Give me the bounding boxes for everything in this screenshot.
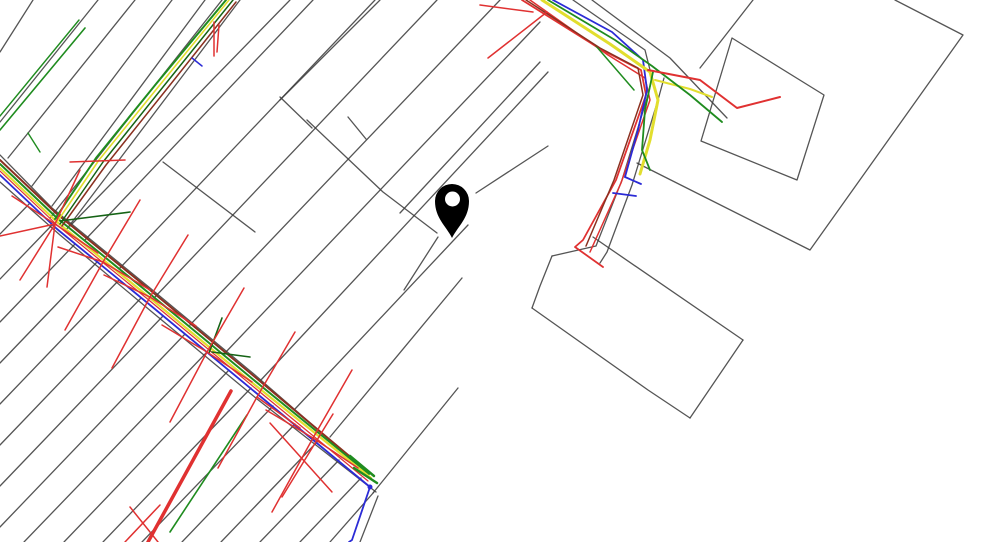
parcel-lines-layer — [0, 0, 963, 542]
cadastral-map — [0, 0, 1000, 542]
location-marker-icon[interactable] — [433, 182, 471, 240]
service-connections-layer — [0, 22, 358, 542]
map-viewport[interactable] — [0, 0, 1000, 542]
cable-nodes-layer — [368, 485, 373, 490]
